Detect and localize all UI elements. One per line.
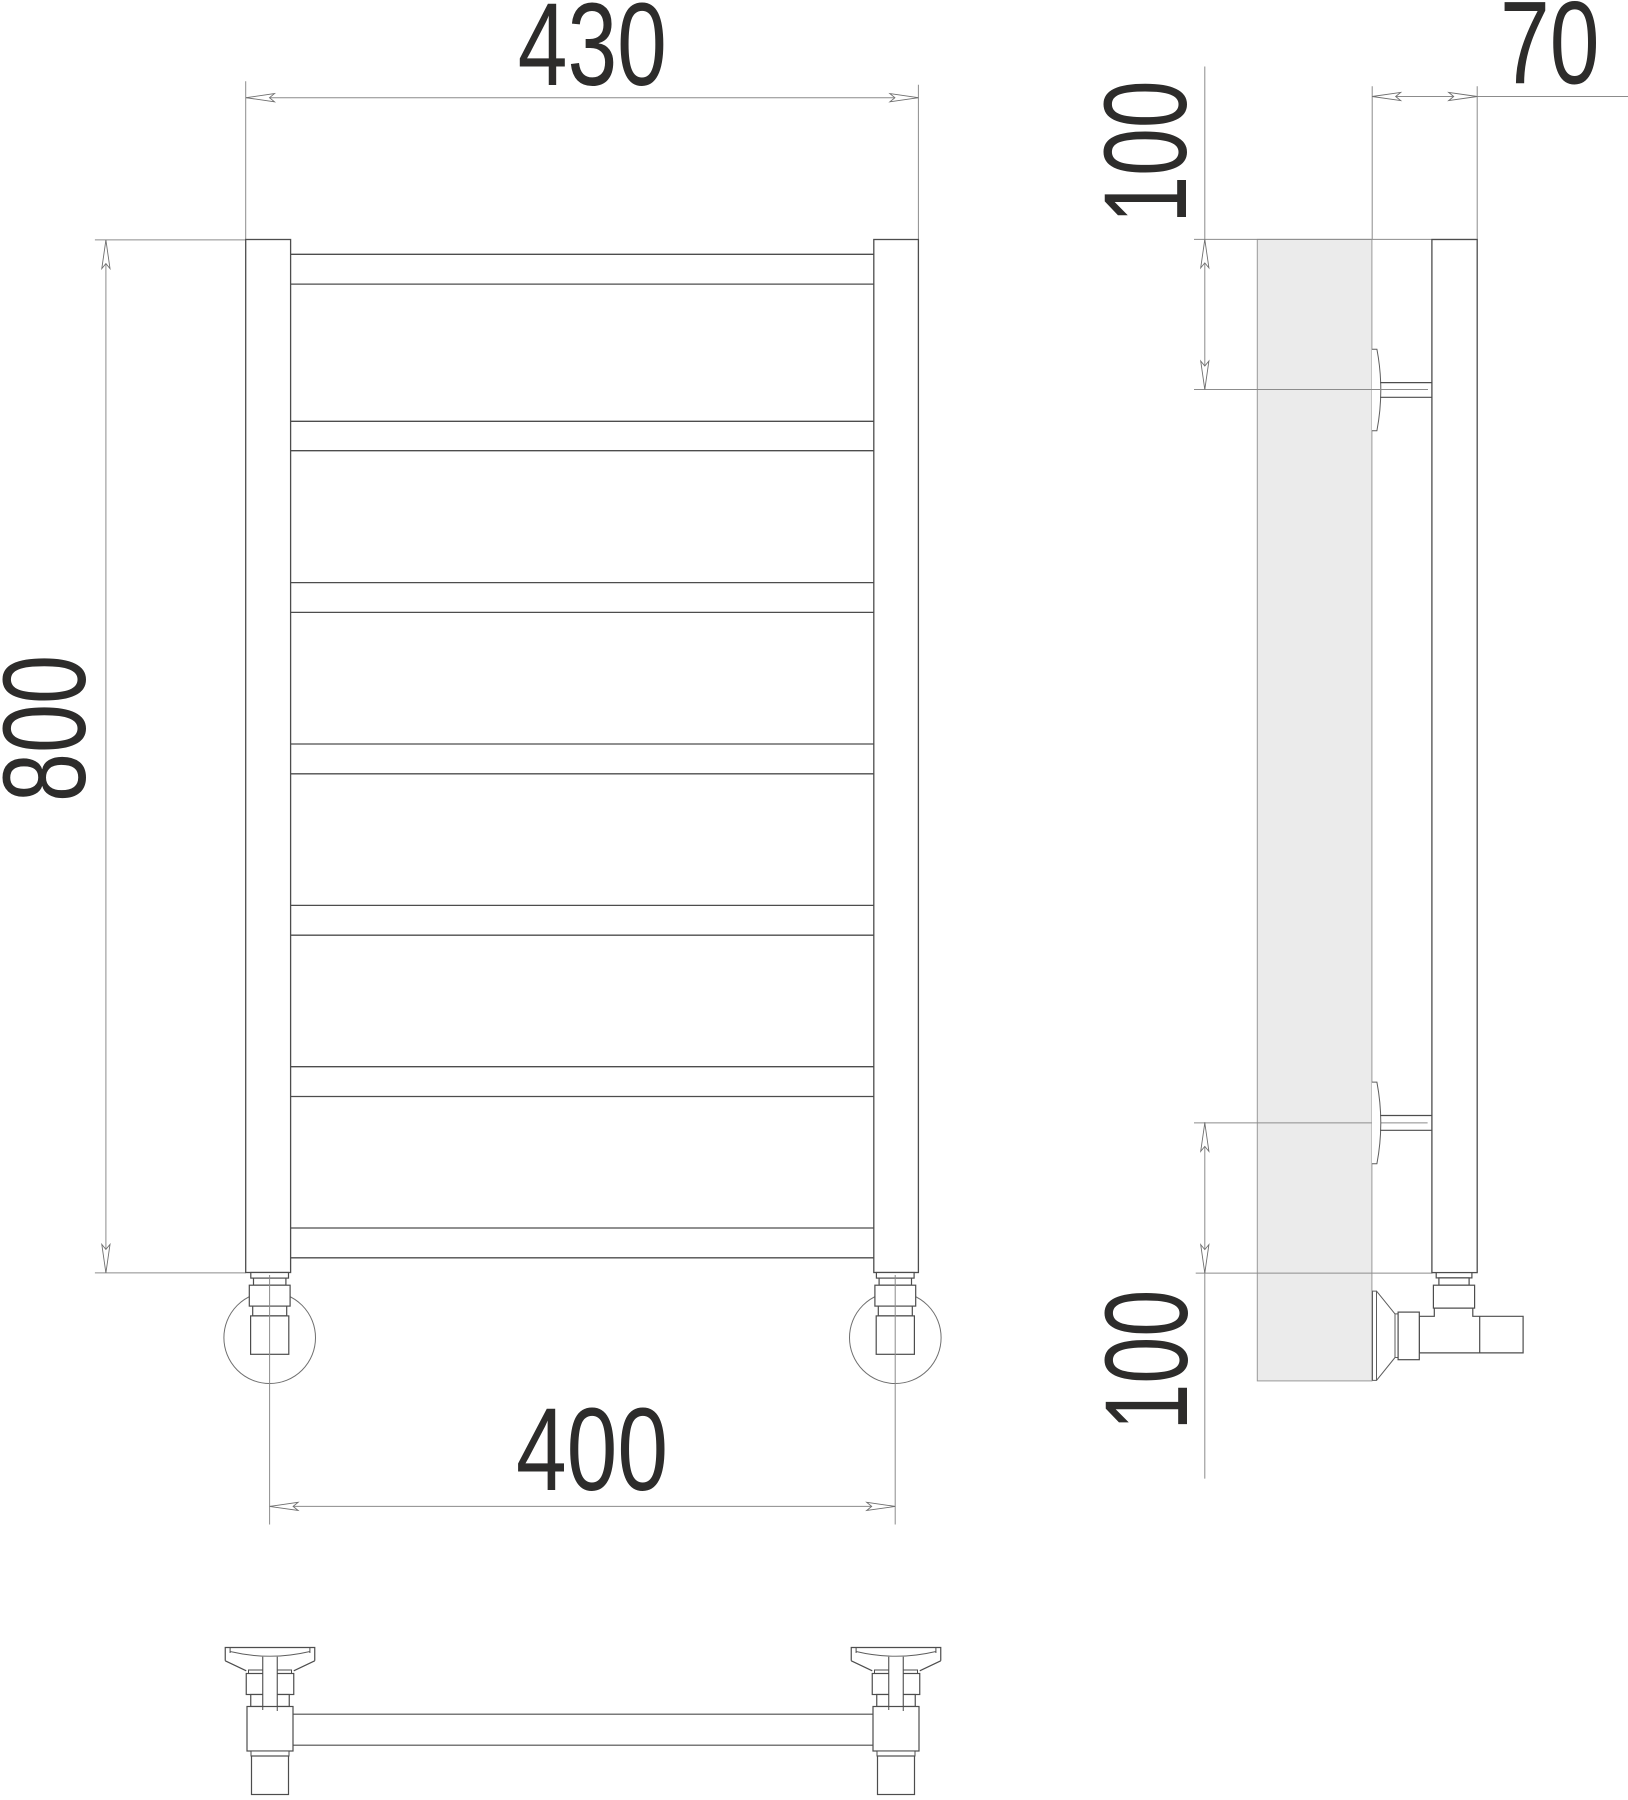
svg-text:430: 430 <box>518 0 667 110</box>
svg-text:100: 100 <box>1079 81 1211 224</box>
svg-text:800: 800 <box>0 655 110 802</box>
svg-text:400: 400 <box>516 1383 668 1515</box>
svg-text:100: 100 <box>1080 1290 1212 1431</box>
svg-text:70: 70 <box>1500 0 1600 109</box>
